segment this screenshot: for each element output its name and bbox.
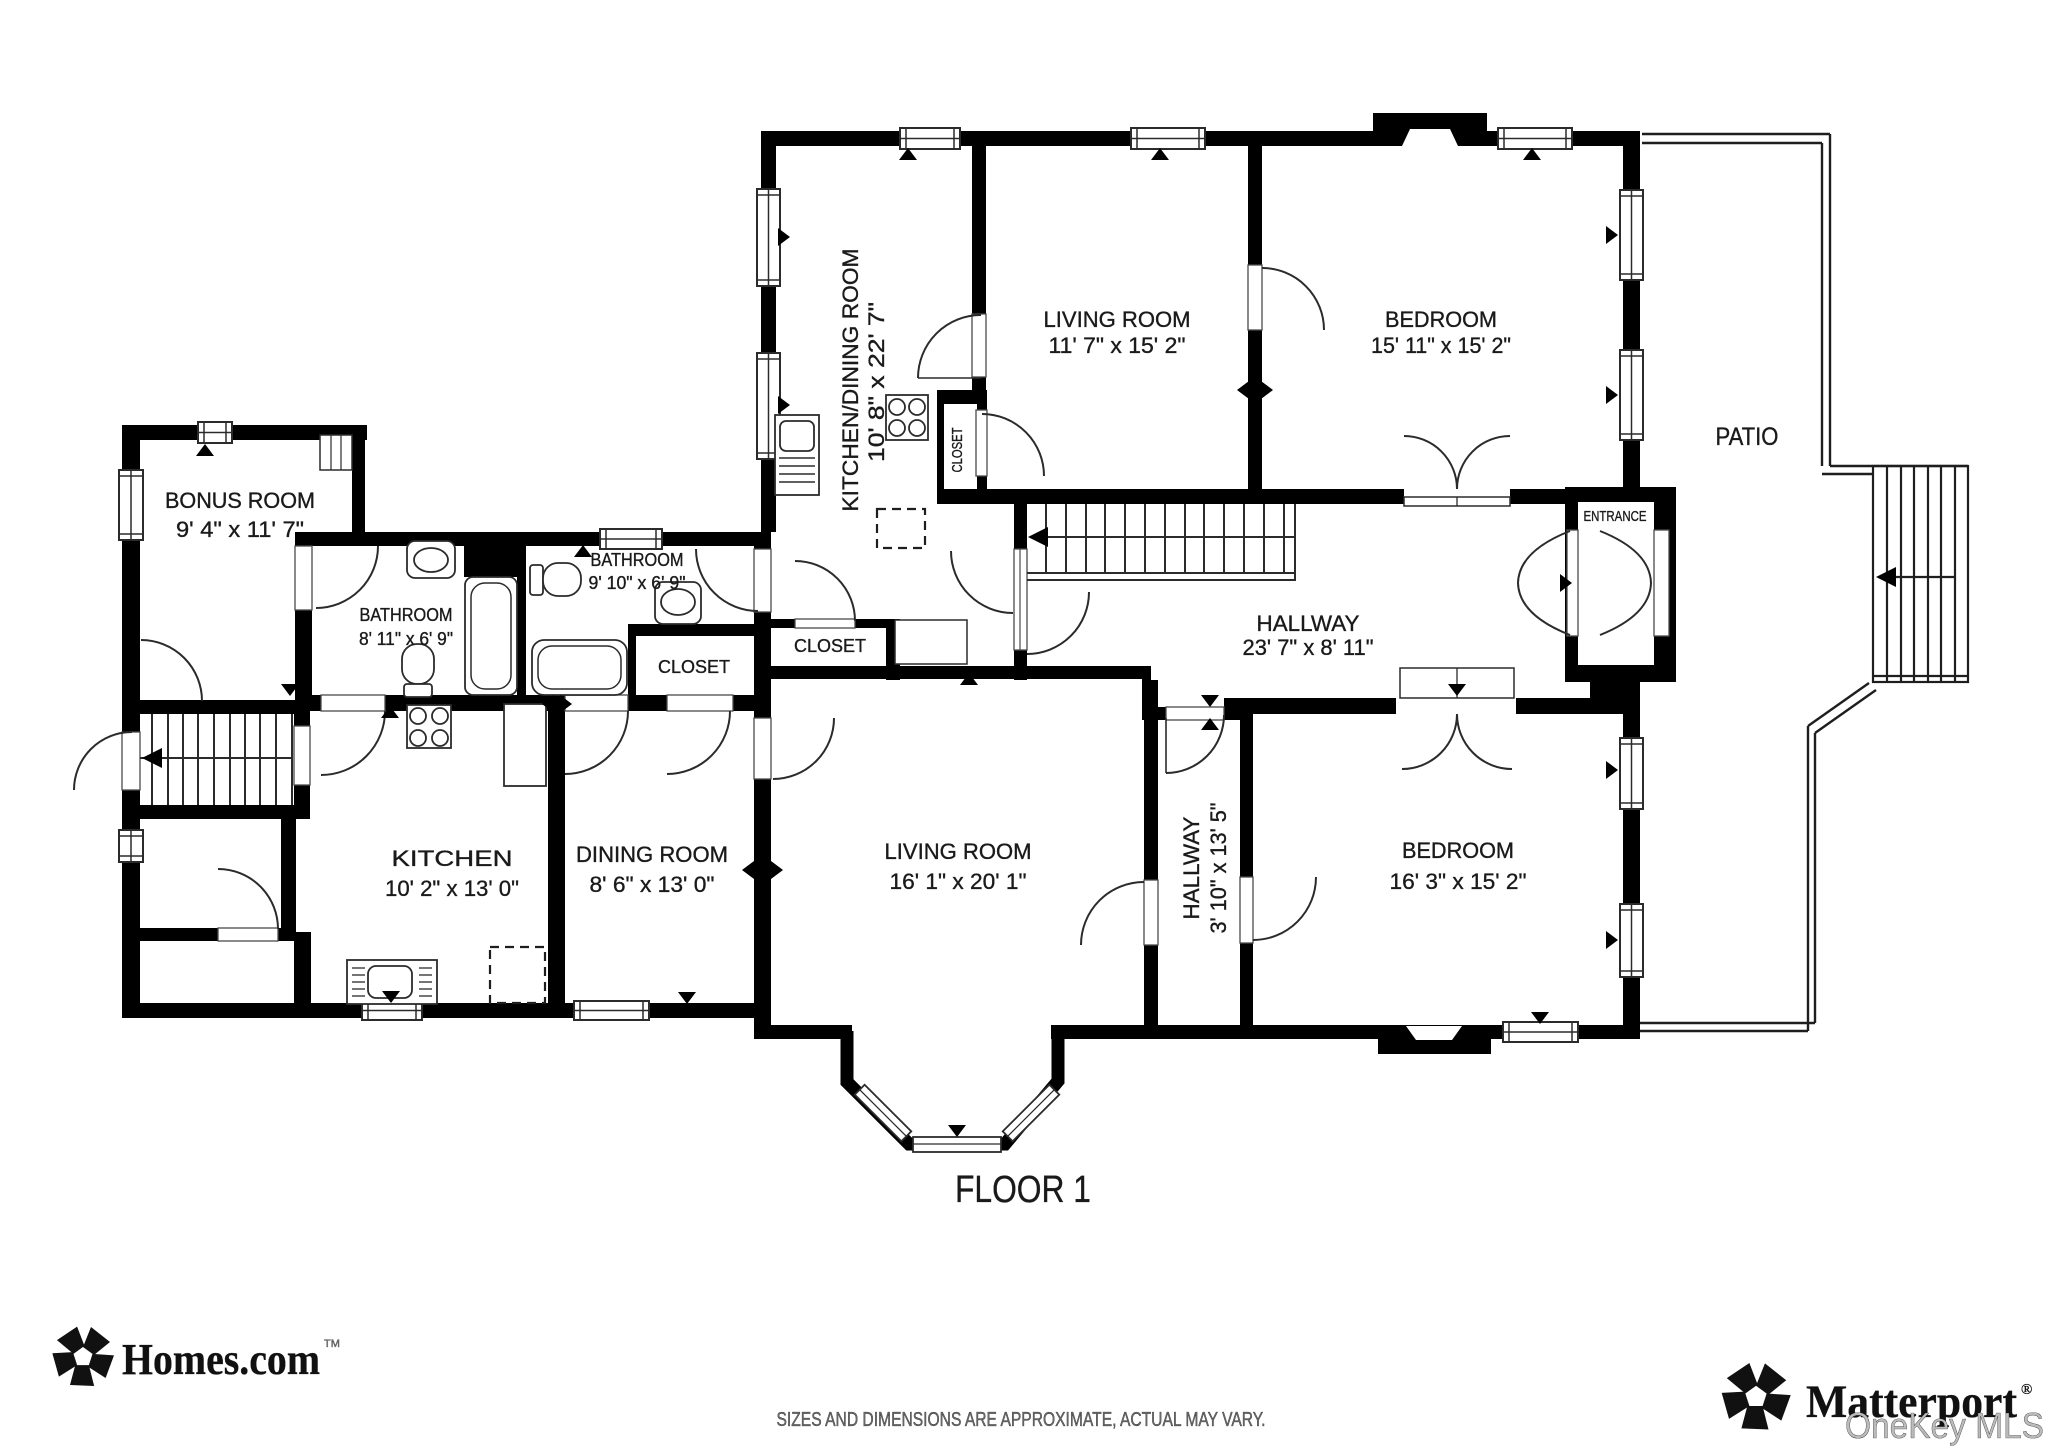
svg-text:HALLWAY: HALLWAY bbox=[1179, 816, 1204, 919]
svg-text:BEDROOM: BEDROOM bbox=[1402, 838, 1514, 863]
svg-text:9' 4" x 11' 7": 9' 4" x 11' 7" bbox=[176, 517, 304, 542]
svg-text:3' 10" x 13' 5": 3' 10" x 13' 5" bbox=[1206, 803, 1231, 934]
svg-text:LIVING ROOM: LIVING ROOM bbox=[885, 839, 1032, 864]
svg-text:10' 8" x 22' 7": 10' 8" x 22' 7" bbox=[864, 302, 889, 462]
svg-text:BONUS ROOM: BONUS ROOM bbox=[165, 488, 315, 513]
svg-text:OneKey MLS: OneKey MLS bbox=[1845, 1405, 2044, 1446]
svg-text:CLOSET: CLOSET bbox=[658, 657, 730, 677]
svg-text:LIVING ROOM: LIVING ROOM bbox=[1044, 307, 1191, 332]
svg-text:CLOSET: CLOSET bbox=[794, 636, 866, 656]
svg-text:9' 10" x 6' 9": 9' 10" x 6' 9" bbox=[589, 573, 686, 593]
svg-text:TM: TM bbox=[324, 1338, 340, 1350]
svg-text:KITCHEN: KITCHEN bbox=[392, 846, 513, 871]
svg-text:Homes.com: Homes.com bbox=[122, 1335, 320, 1384]
svg-text:16' 1" x 20' 1": 16' 1" x 20' 1" bbox=[890, 869, 1027, 894]
svg-text:10' 2" x 13' 0": 10' 2" x 13' 0" bbox=[385, 876, 519, 901]
svg-text:8' 11" x 6' 9": 8' 11" x 6' 9" bbox=[359, 629, 453, 649]
svg-text:HALLWAY: HALLWAY bbox=[1257, 611, 1360, 636]
svg-text:8' 6" x 13' 0": 8' 6" x 13' 0" bbox=[590, 872, 715, 897]
svg-text:DINING ROOM: DINING ROOM bbox=[576, 842, 728, 867]
svg-text:PATIO: PATIO bbox=[1716, 423, 1779, 451]
svg-text:BATHROOM: BATHROOM bbox=[591, 550, 684, 570]
svg-text:ENTRANCE: ENTRANCE bbox=[1584, 508, 1647, 525]
svg-text:SIZES AND DIMENSIONS ARE APPRO: SIZES AND DIMENSIONS ARE APPROXIMATE, AC… bbox=[777, 1409, 1266, 1431]
svg-text:11' 7" x 15' 2": 11' 7" x 15' 2" bbox=[1049, 333, 1186, 358]
svg-text:BEDROOM: BEDROOM bbox=[1385, 307, 1497, 332]
svg-text:BATHROOM: BATHROOM bbox=[360, 605, 453, 625]
svg-text:16' 3" x 15' 2": 16' 3" x 15' 2" bbox=[1390, 869, 1527, 894]
svg-text:FLOOR 1: FLOOR 1 bbox=[955, 1169, 1091, 1211]
svg-text:23' 7" x 8' 11": 23' 7" x 8' 11" bbox=[1243, 635, 1374, 660]
svg-text:CLOSET: CLOSET bbox=[949, 428, 966, 473]
svg-text:15' 11" x 15' 2": 15' 11" x 15' 2" bbox=[1371, 333, 1511, 358]
svg-text:®: ® bbox=[2021, 1382, 2032, 1398]
svg-text:KITCHEN/DINING ROOM: KITCHEN/DINING ROOM bbox=[838, 249, 863, 512]
